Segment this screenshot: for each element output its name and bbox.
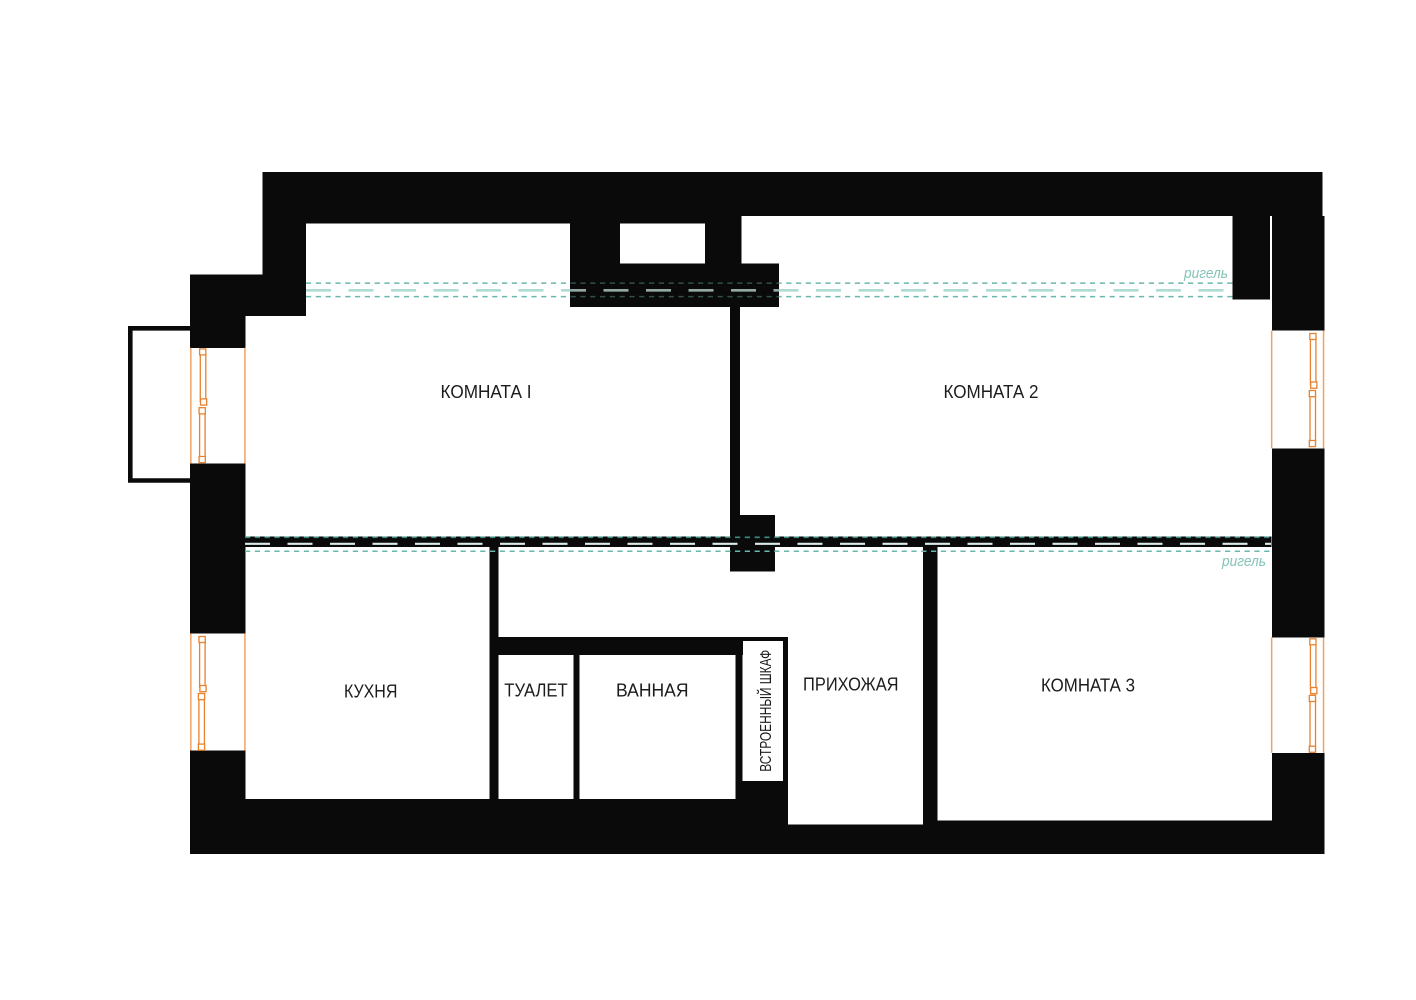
svg-text:ригель: ригель — [1221, 553, 1266, 570]
svg-text:ВСТРОЕННЫЙ ШКАФ: ВСТРОЕННЫЙ ШКАФ — [757, 650, 775, 772]
svg-text:ПРИХОЖАЯ: ПРИХОЖАЯ — [803, 674, 899, 695]
svg-text:ригель: ригель — [1183, 265, 1228, 282]
svg-text:КУХНЯ: КУХНЯ — [344, 681, 398, 702]
svg-text:ТУАЛЕТ: ТУАЛЕТ — [504, 680, 568, 701]
svg-text:ВАННАЯ: ВАННАЯ — [616, 680, 689, 701]
svg-text:КОМНАТА 2: КОМНАТА 2 — [944, 381, 1039, 402]
svg-text:КОМНАТА I: КОМНАТА I — [441, 381, 532, 402]
svg-text:КОМНАТА 3: КОМНАТА 3 — [1041, 674, 1135, 695]
